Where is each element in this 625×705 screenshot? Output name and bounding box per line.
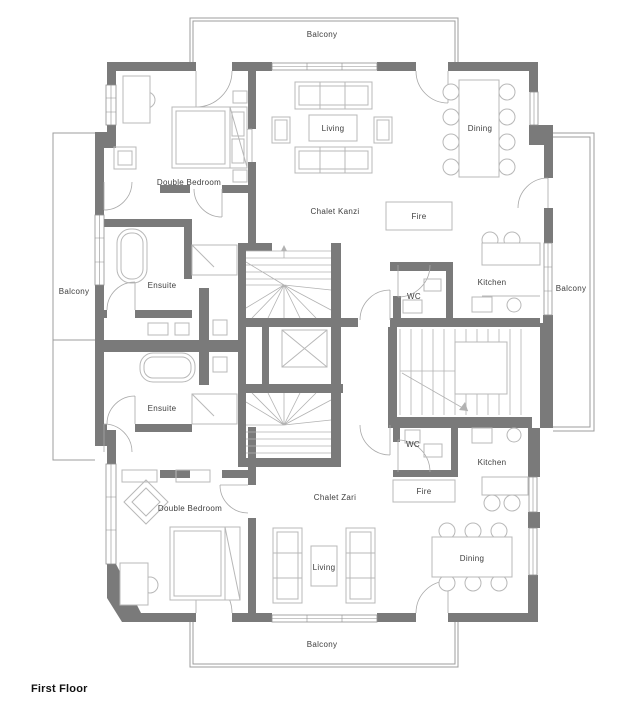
- stair-landing: [455, 342, 507, 394]
- stair-up-arrow: [281, 245, 287, 251]
- vanity-basin: [175, 323, 189, 335]
- sofa-left: [273, 528, 302, 603]
- lounge-chair-diamond: [124, 480, 168, 524]
- floor-title: First Floor: [31, 683, 88, 695]
- armchair-seat: [118, 151, 132, 165]
- wc-toilet: [403, 300, 422, 313]
- label-ensuite-bottom: Ensuite: [148, 404, 177, 413]
- label-dining-top: Dining: [468, 124, 492, 133]
- label-fire-top: Fire: [412, 212, 427, 221]
- bedside-table: [233, 91, 247, 103]
- label-kitchen-top: Kitchen: [478, 278, 507, 287]
- kitchen-bottom-units: [472, 428, 528, 511]
- label-balcony-right: Balcony: [556, 284, 587, 293]
- label-chalet-zari: Chalet Zari: [314, 493, 356, 502]
- label-dining-bottom: Dining: [460, 554, 484, 563]
- shower-top: [192, 245, 237, 275]
- label-wc-bottom: WC: [406, 440, 420, 449]
- armchair: [114, 147, 136, 169]
- floor-plan-svg: Balcony Balcony Balcony Balcony Double B…: [0, 0, 625, 705]
- wc-sink: [424, 279, 441, 291]
- sofa-right: [346, 528, 375, 603]
- label-balcony-top: Balcony: [307, 30, 338, 39]
- floor-plan-page: Balcony Balcony Balcony Balcony Double B…: [0, 0, 625, 705]
- label-chalet-kanzi: Chalet Kanzi: [311, 207, 360, 216]
- label-living-bottom: Living: [313, 563, 336, 572]
- label-balcony-left: Balcony: [59, 287, 90, 296]
- bathtub-top: [117, 229, 147, 283]
- elevator: [282, 330, 327, 367]
- label-wc-top: WC: [407, 292, 421, 301]
- armchair-seat: [275, 120, 287, 140]
- label-double-bedroom-top: Double Bedroom: [157, 178, 221, 187]
- label-living-top: Living: [322, 124, 345, 133]
- kitchen-top-units: [472, 232, 540, 312]
- shower-bottom: [192, 394, 237, 424]
- bedside-table: [233, 170, 247, 182]
- wc-toilet: [424, 444, 442, 457]
- label-double-bedroom-bottom: Double Bedroom: [158, 504, 222, 513]
- armchair-seat: [377, 120, 389, 140]
- desk: [120, 563, 148, 605]
- label-fire-bottom: Fire: [417, 487, 432, 496]
- sofa-bottom: [295, 147, 372, 173]
- wardrobe: [122, 470, 157, 482]
- desk: [123, 76, 150, 123]
- vanity-basin: [148, 323, 168, 335]
- bathtub-bottom: [140, 353, 195, 382]
- label-balcony-bottom: Balcony: [307, 640, 338, 649]
- toilet: [213, 320, 227, 335]
- bed-top: [172, 107, 247, 168]
- bed-bottom: [170, 527, 240, 600]
- toilet: [213, 357, 227, 372]
- label-ensuite-top: Ensuite: [148, 281, 177, 290]
- label-kitchen-bottom: Kitchen: [478, 458, 507, 467]
- sofa-top: [295, 82, 372, 109]
